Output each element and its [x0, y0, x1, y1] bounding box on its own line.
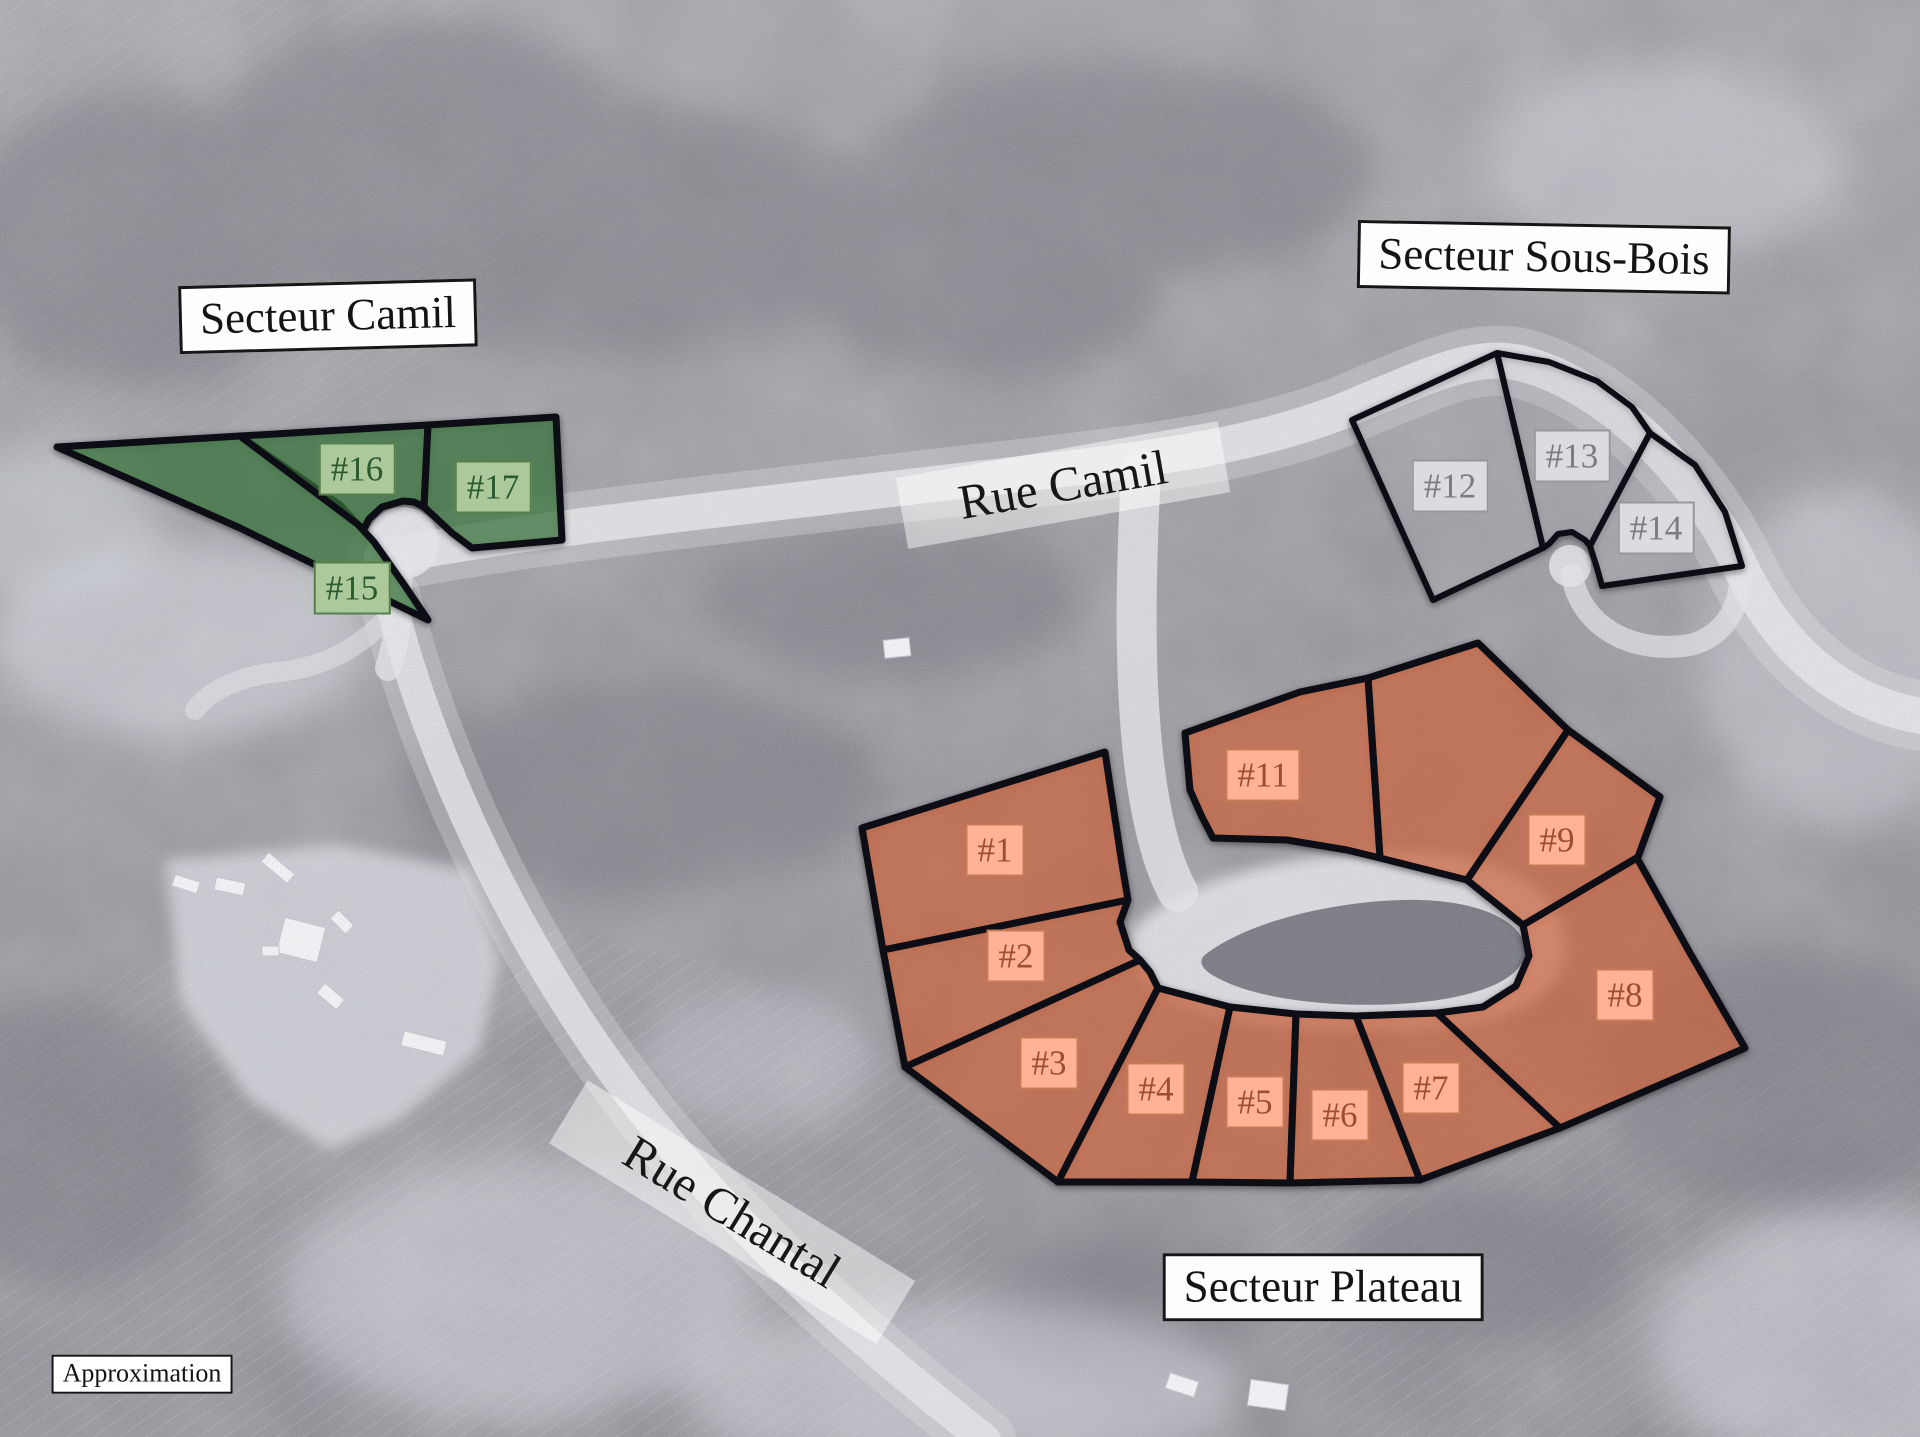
plot-label-11[interactable]: #11: [1225, 749, 1300, 802]
plot-label-16[interactable]: #16: [319, 443, 396, 496]
plot-label-13[interactable]: #13: [1534, 430, 1611, 483]
plot-label-12[interactable]: #12: [1412, 460, 1489, 513]
sector-label-plateau: Secteur Plateau: [1163, 1253, 1484, 1321]
plot-label-3[interactable]: #3: [1020, 1037, 1079, 1090]
plot-label-6[interactable]: #6: [1311, 1089, 1370, 1142]
sector-label-camil: Secteur Camil: [178, 278, 478, 353]
plot-label-9[interactable]: #9: [1528, 814, 1587, 867]
plot-label-2[interactable]: #2: [987, 930, 1046, 983]
plot-label-1[interactable]: #1: [966, 824, 1025, 877]
sector-label-sous-bois: Secteur Sous-Bois: [1357, 220, 1731, 294]
plot-label-4[interactable]: #4: [1127, 1063, 1186, 1116]
plot-label-7[interactable]: #7: [1402, 1062, 1461, 1115]
aerial-map-canvas: [0, 0, 1920, 1437]
terrain-grain-texture: [0, 0, 1920, 1437]
lot-map: #15 #16 #17 #12 #13 #14 #1 #2 #3 #4 #5 #…: [0, 0, 1920, 1437]
plot-label-17[interactable]: #17: [455, 461, 532, 514]
approximation-note: Approximation: [52, 1355, 233, 1394]
plot-label-14[interactable]: #14: [1618, 502, 1695, 555]
plot-label-8[interactable]: #8: [1596, 969, 1655, 1022]
plot-label-5[interactable]: #5: [1226, 1076, 1285, 1129]
plot-label-15[interactable]: #15: [314, 562, 391, 615]
